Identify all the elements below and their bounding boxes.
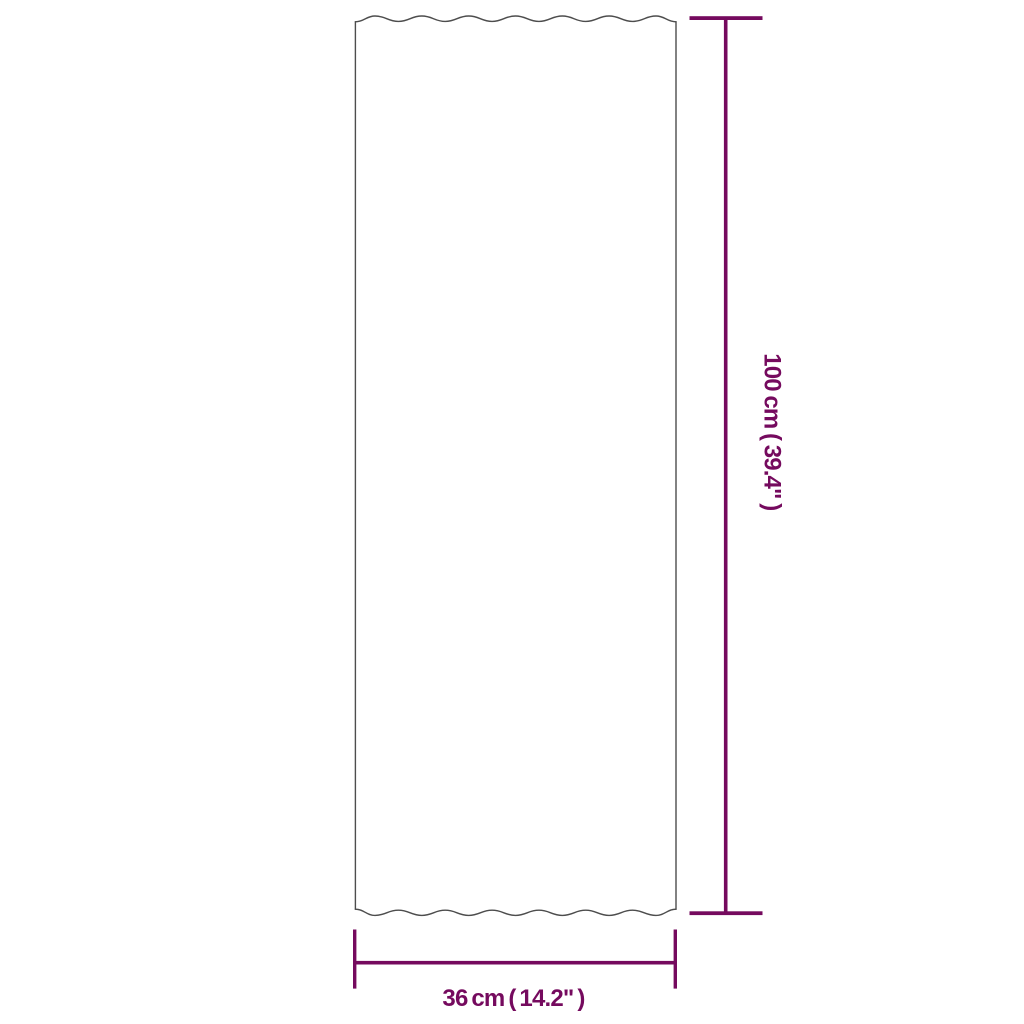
svg-text:100 cm ( 39.4" ): 100 cm ( 39.4" ) bbox=[759, 353, 786, 510]
svg-text:36 cm ( 14.2" ): 36 cm ( 14.2" ) bbox=[442, 985, 584, 1012]
